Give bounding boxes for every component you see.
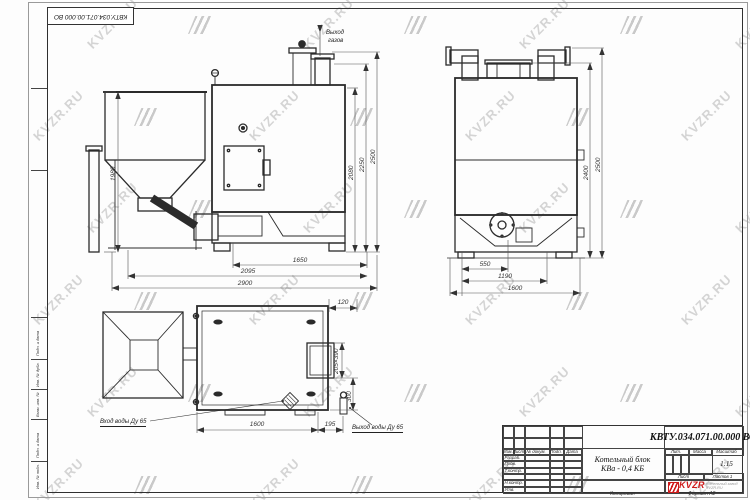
side-view-dimensions <box>450 48 604 296</box>
plan-view-drawing <box>103 306 347 415</box>
org-line1: Котельный завод <box>706 482 738 486</box>
col-ndocum: № докум. <box>526 449 545 454</box>
dim-front-w2: 2095 <box>241 268 255 275</box>
title-block-line <box>672 454 674 475</box>
lit-label: Лит. <box>671 449 681 454</box>
lit-value-cell <box>664 454 690 475</box>
mass-value-cell <box>688 454 713 475</box>
dim-plan-w1: 1600 <box>250 421 264 428</box>
dim-plan-depth: 300 <box>346 391 353 402</box>
copied-label: Копировал <box>610 491 635 497</box>
dim-front-w3: 2900 <box>238 280 252 287</box>
row-nkontr: Н.контр. <box>505 480 524 485</box>
format-label: Формат А2 <box>688 491 715 497</box>
water-inlet-label: Вход воды Ду 65 <box>100 419 146 427</box>
front-view-dimensions <box>103 32 380 291</box>
title-block: КВТУ.034.071.00.000 ВО Котельный блок КВ… <box>502 425 743 493</box>
kvzr-logo-text: KVZR <box>679 480 705 490</box>
name-line1: Котельный блок <box>595 455 651 464</box>
title-block-line <box>563 426 565 456</box>
dim-plan-offset: 120 <box>338 299 349 306</box>
row-prov: Пров. <box>505 461 517 466</box>
title-block-line <box>563 454 565 494</box>
dim-side-w2: 1190 <box>498 273 512 280</box>
dim-side-w3: 1600 <box>508 285 522 292</box>
org-line2: KVZR.RU <box>706 486 723 490</box>
gas-outlet-label: газов <box>328 38 343 44</box>
title-block-doc-number: КВТУ.034.071.00.000 ВО <box>664 426 742 448</box>
gas-outlet-label: Выход <box>326 30 344 36</box>
title-block-line <box>524 454 526 494</box>
dim-front-h1: 2080 <box>348 166 355 180</box>
dim-front-w1: 1650 <box>293 257 307 264</box>
title-block-line <box>549 454 551 494</box>
dim-plan-window: 205×390 <box>333 349 340 375</box>
col-podp: Подп. <box>550 449 562 454</box>
dim-front-h2: 2250 <box>359 158 366 172</box>
row-razrab: Разраб. <box>505 455 521 460</box>
dim-side-h2: 2500 <box>595 158 602 172</box>
row-utv: Утв. <box>505 487 515 492</box>
drawing-sheet: KVZR.RUKVZR.RUKVZR.RUKVZR.RUKVZR.RUKVZR.… <box>0 0 750 500</box>
mass-label: Масса <box>693 449 706 454</box>
title-block-row <box>503 486 583 494</box>
dim-plan-w2: 195 <box>325 421 336 428</box>
col-list: Лист <box>513 449 524 454</box>
side-view-drawing <box>446 47 585 258</box>
dim-side-h1: 2400 <box>583 166 590 180</box>
kvzr-logo-icon <box>668 482 679 493</box>
row-tkontr: Т.контр. <box>505 468 523 473</box>
col-izm: Изм. <box>503 449 512 454</box>
title-block-line <box>680 454 682 475</box>
name-line2: КВа - 0,4 КБ <box>601 464 644 473</box>
dim-front-h3: 2500 <box>370 150 377 164</box>
dim-side-w1: 550 <box>480 261 491 268</box>
front-view-drawing <box>86 41 345 252</box>
dim-front-hopper-height: 1980 <box>110 167 117 181</box>
col-data: Дата <box>566 449 578 454</box>
scale-value: 1:15 <box>711 454 742 473</box>
water-outlet-label: Выход воды Ду 65 <box>352 425 403 433</box>
title-block-name: Котельный блок КВа - 0,4 КБ <box>581 448 664 479</box>
